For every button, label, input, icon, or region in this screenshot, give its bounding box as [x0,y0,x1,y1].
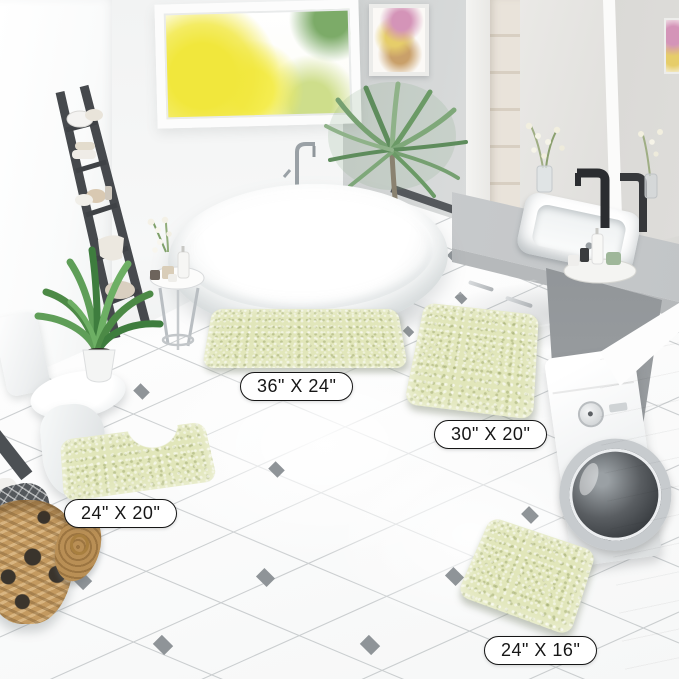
sink-drain [585,242,593,250]
size-label-24x16: 24" X 16" [484,636,597,665]
washer-knob-marker [588,411,594,417]
bath-rug-36x24 [202,309,408,368]
tile-accent-diamond [153,635,173,655]
bathtub-rim-highlight [180,188,436,315]
size-label-24x20: 24" X 20" [64,499,177,528]
bath-rug-30x20 [404,303,539,420]
framed-art-in-mirror [664,18,679,74]
tall-shelf-cabinet [490,0,524,220]
sink-basin [531,203,628,263]
washer-door-glass-highlight [576,460,603,497]
window-with-yellow-trees [154,0,361,129]
basket-lid-ring-handle [70,534,89,555]
size-label-30x20: 30" X 20" [434,420,547,449]
bathroom-product-photo: 36" X 24" 30" X 20" 24" X 20" 24" X 16" [0,0,679,679]
size-label-36x24: 36" X 24" [240,372,353,401]
framed-floral-art [369,4,429,76]
